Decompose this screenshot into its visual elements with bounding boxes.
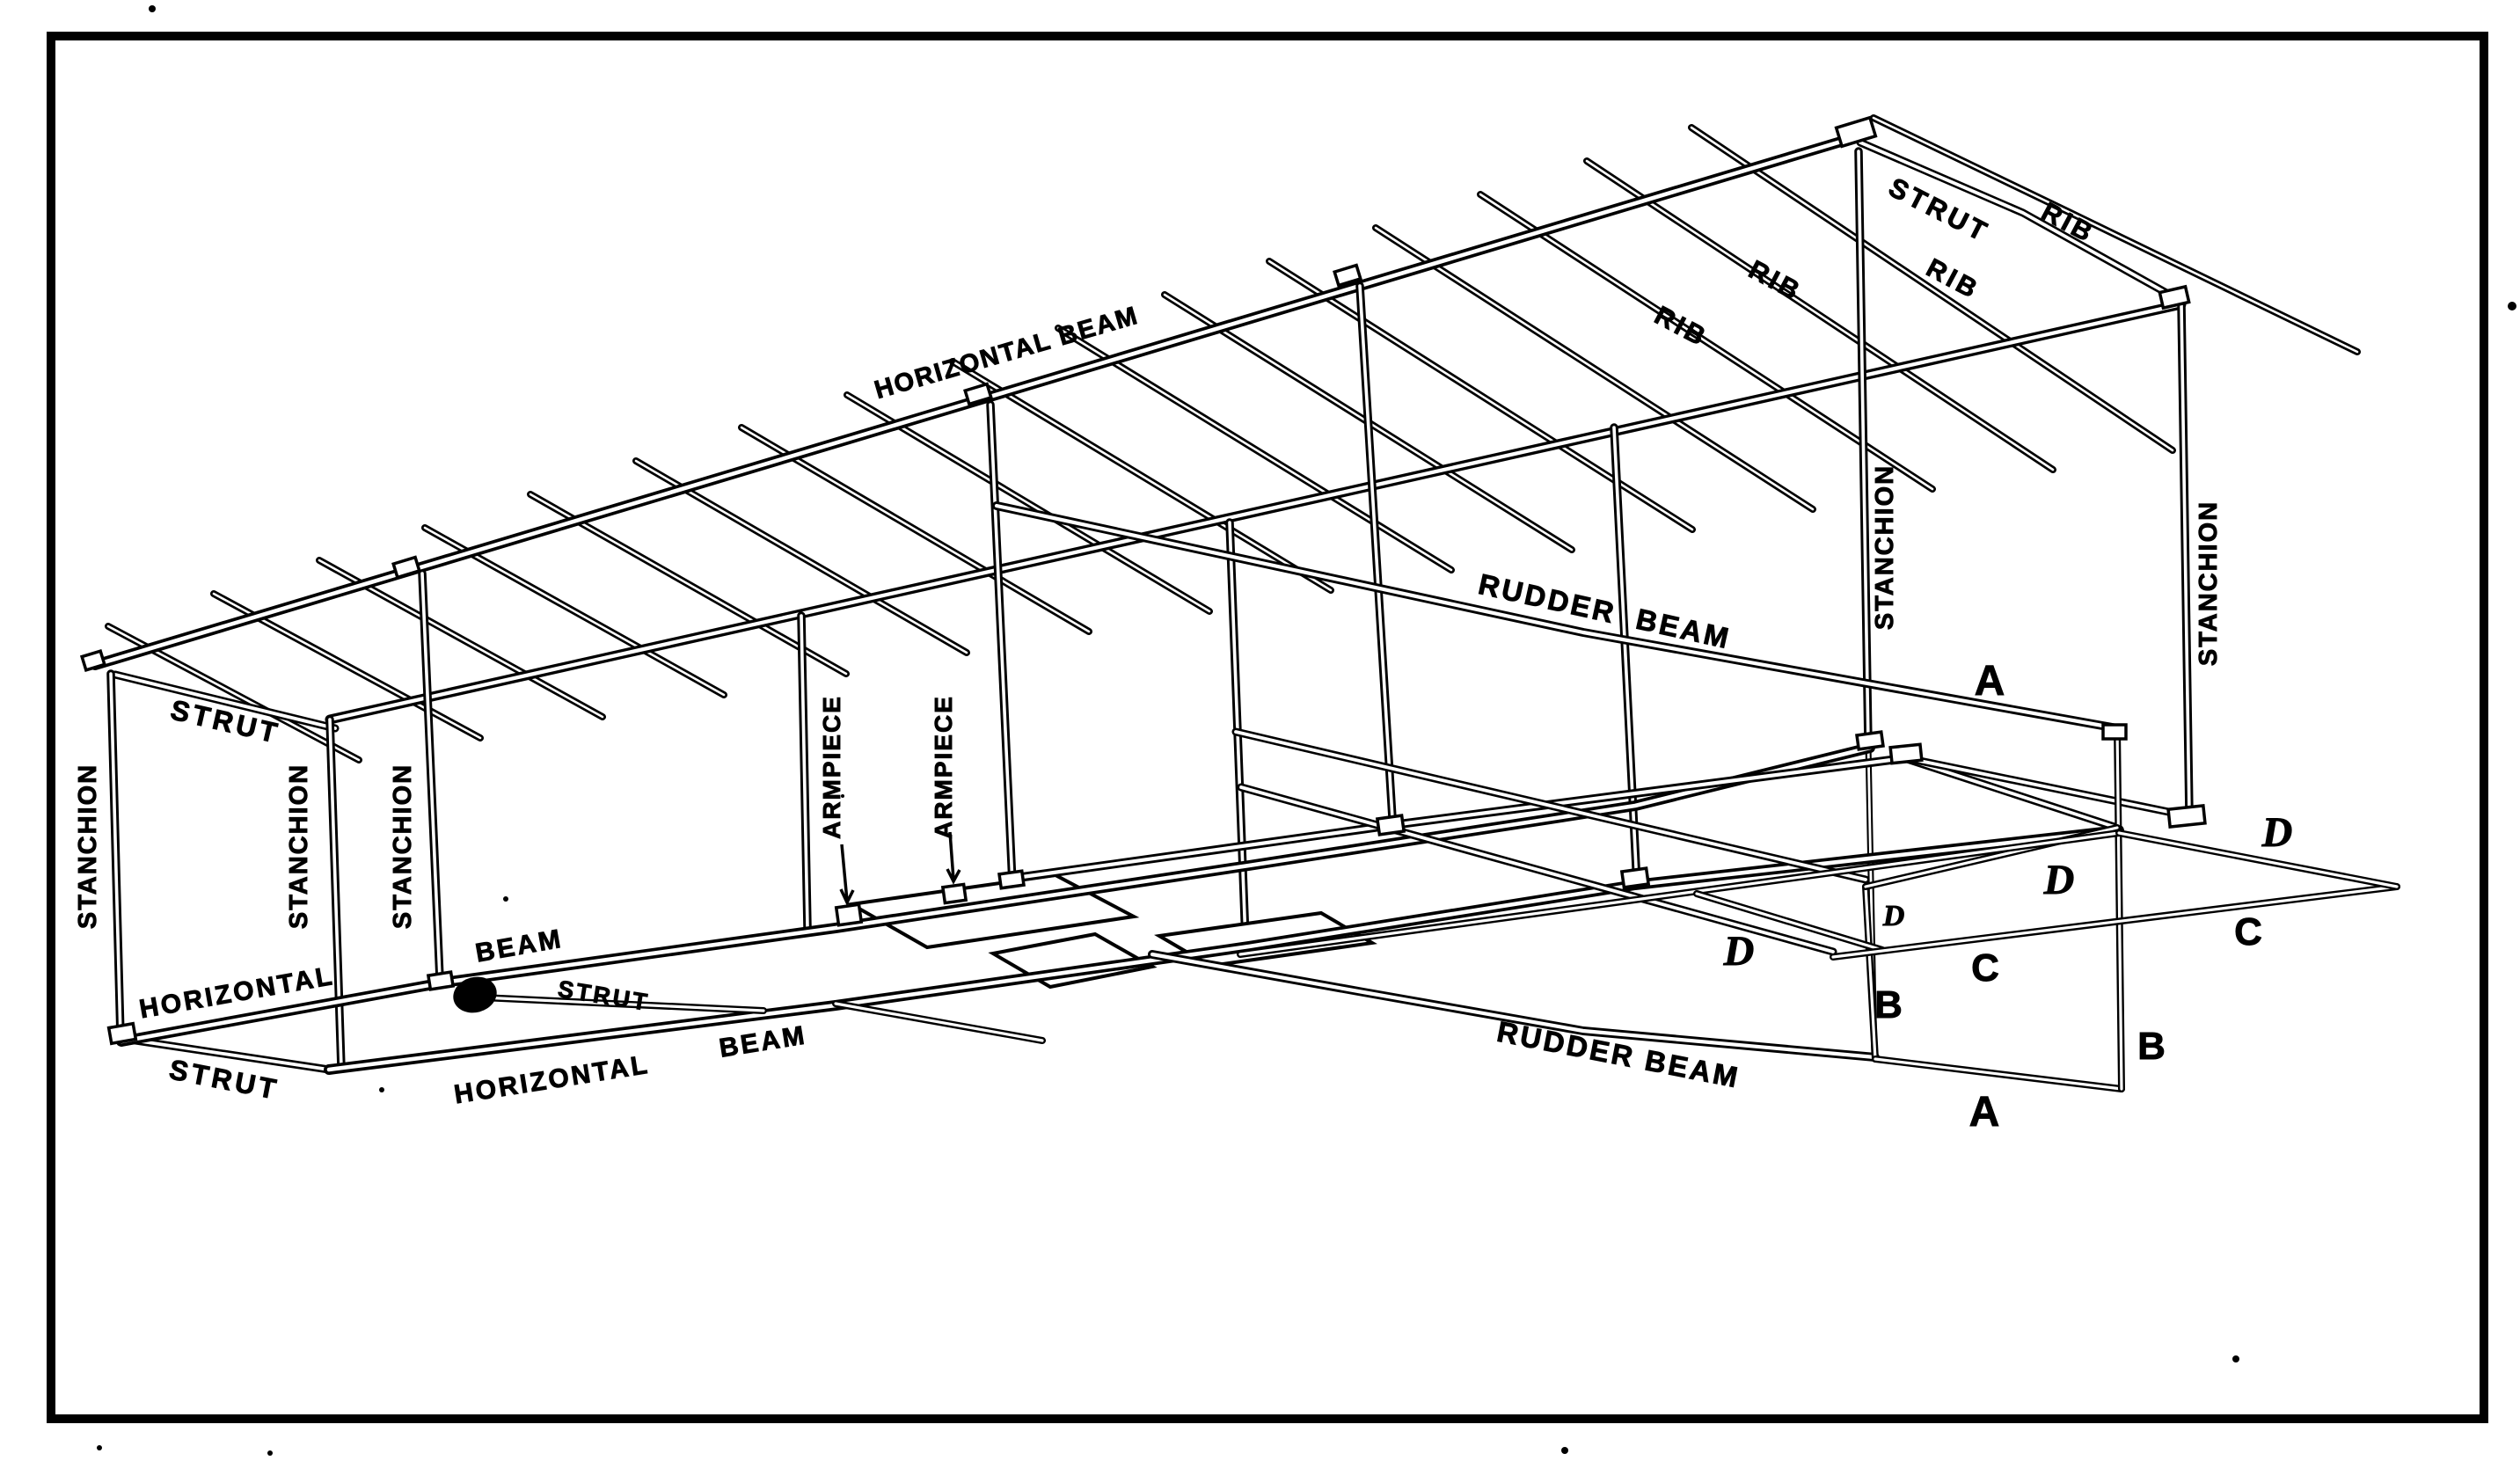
svg-text:D: D: [2043, 857, 2075, 903]
svg-text:A: A: [1969, 1089, 2000, 1136]
svg-text:STANCHION: STANCHION: [285, 763, 313, 929]
svg-text:B: B: [2137, 1025, 2166, 1068]
svg-text:STANCHION: STANCHION: [2195, 500, 2223, 666]
svg-text:C: C: [1971, 946, 1999, 990]
svg-text:D: D: [1723, 928, 1755, 975]
svg-text:C: C: [2234, 910, 2262, 953]
svg-text:D: D: [2261, 809, 2293, 856]
svg-text:STANCHION: STANCHION: [1871, 464, 1899, 630]
svg-text:ARMPIECE: ARMPIECE: [818, 695, 845, 839]
svg-text:STANCHION: STANCHION: [74, 763, 102, 929]
svg-text:STANCHION: STANCHION: [389, 763, 417, 929]
svg-text:ARMPIECE: ARMPIECE: [930, 695, 957, 839]
svg-text:A: A: [1975, 658, 2005, 705]
svg-text:D: D: [1882, 900, 1905, 932]
svg-text:B: B: [1874, 983, 1903, 1026]
